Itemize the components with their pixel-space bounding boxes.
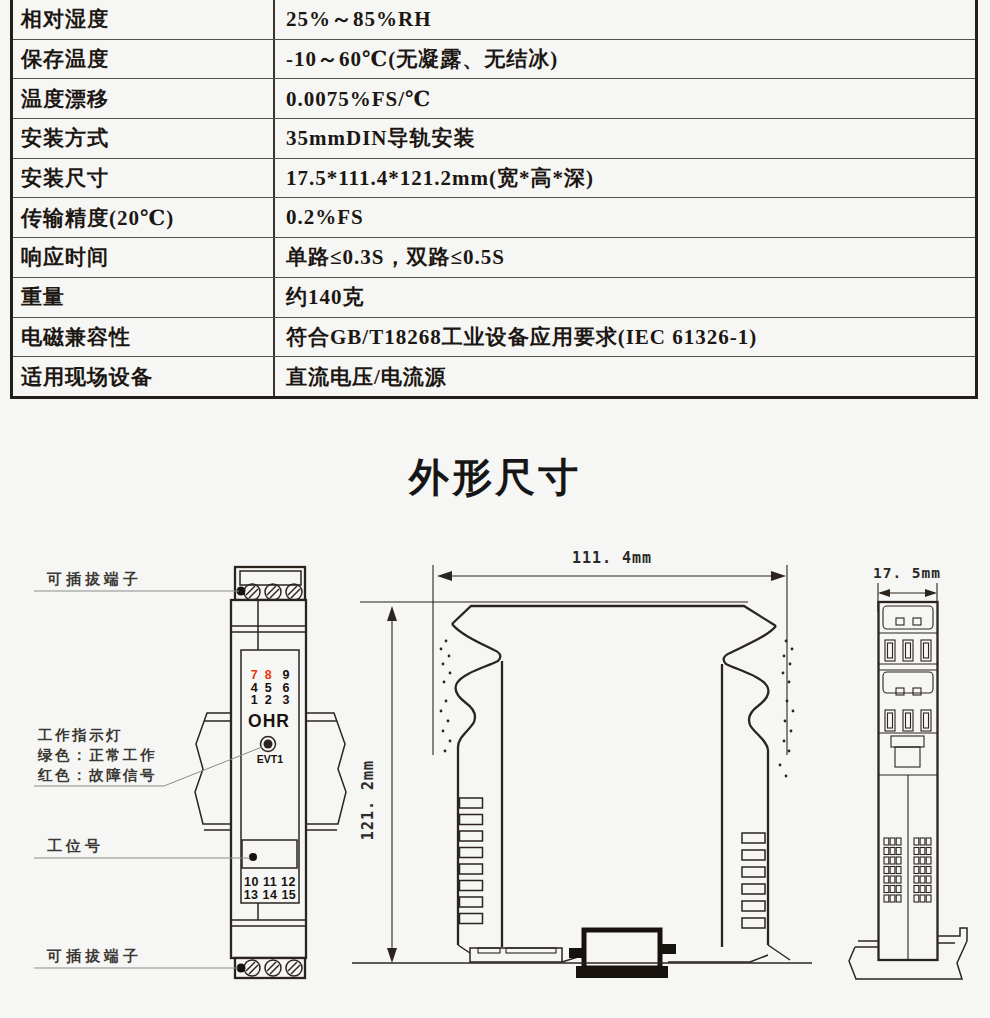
din-rail-right [306, 713, 346, 830]
row-value: 17.5*111.4*121.2mm(宽*高*深) [275, 164, 975, 192]
row-value: 0.0075%FS/℃ [275, 86, 975, 112]
label-work-indicator: 工作指示灯 [37, 727, 123, 743]
svg-text:13 14 15: 13 14 15 [244, 888, 297, 902]
row-label: 适用现场设备 [13, 357, 275, 396]
vent-slots-right [742, 833, 765, 928]
station-number-box [242, 840, 297, 868]
row-label: 电磁兼容性 [13, 318, 275, 357]
texture-dots-left [440, 640, 452, 753]
svg-text:1 2 3: 1 2 3 [251, 693, 290, 707]
side-view: 111. 4mm 121. 2mm [352, 549, 812, 978]
row-label: 安装方式 [13, 119, 275, 158]
terminal-numbers-bottom: 10 11 12 13 14 15 [244, 875, 297, 902]
svg-text:121. 2mm: 121. 2mm [359, 760, 377, 840]
row-label: 相对湿度 [13, 0, 275, 39]
row-value: 符合GB/T18268工业设备应用要求(IEC 61326-1) [275, 323, 975, 351]
svg-text:17. 5mm: 17. 5mm [873, 565, 941, 581]
svg-text:111. 4mm: 111. 4mm [572, 549, 652, 567]
table-row: 安装方式 35mmDIN导轨安装 [13, 118, 975, 158]
row-label: 安装尺寸 [13, 159, 275, 198]
module-profile [352, 606, 812, 978]
svg-text:10 11 12: 10 11 12 [244, 875, 296, 889]
brand-logo: OHR [248, 711, 290, 731]
front-view: 7 8 9 4 5 6 1 2 3 OHR [195, 567, 346, 978]
row-value: 单路≤0.3S，双路≤0.5S [275, 243, 975, 271]
table-row: 相对湿度 25%～85%RH [13, 0, 975, 39]
label-station-number: 工位号 [47, 837, 104, 854]
row-label: 传输精度(20℃) [13, 198, 275, 237]
table-row: 保存温度 -10～60℃(无凝露、无结冰) [13, 39, 975, 79]
dim-height: 121. 2mm [359, 602, 748, 963]
row-label: 温度漂移 [13, 79, 275, 118]
label-pluggable-terminal-top: 可插拔端子 [46, 570, 142, 587]
table-row: 电磁兼容性 符合GB/T18268工业设备应用要求(IEC 61326-1) [13, 317, 975, 357]
label-red-fault: 红色：故障信号 [37, 767, 157, 783]
row-label: 重量 [13, 278, 275, 317]
page: 相对湿度 25%～85%RH 保存温度 -10～60℃(无凝露、无结冰) 温度漂… [0, 0, 990, 1018]
led-label: EVT1 [257, 753, 283, 765]
row-value: -10～60℃(无凝露、无结冰) [275, 45, 975, 73]
label-pluggable-terminal-bottom: 可插拔端子 [46, 947, 142, 964]
table-row: 安装尺寸 17.5*111.4*121.2mm(宽*高*深) [13, 158, 975, 198]
table-row: 适用现场设备 直流电压/电流源 [13, 356, 975, 396]
row-value: 约140克 [275, 283, 975, 311]
vent-slots-left [460, 798, 483, 924]
spec-table: 相对湿度 25%～85%RH 保存温度 -10～60℃(无凝露、无结冰) 温度漂… [10, 0, 978, 399]
table-row: 传输精度(20℃) 0.2%FS [13, 197, 975, 237]
section-title: 外形尺寸 [0, 450, 990, 505]
table-row: 温度漂移 0.0075%FS/℃ [13, 78, 975, 118]
callouts: 可插拔端子 工作指示灯 绿色：正常工作 红色：故障信号 工位号 可插拔端子 [34, 570, 262, 968]
table-row: 响应时间 单路≤0.3S，双路≤0.5S [13, 237, 975, 277]
row-value: 直流电压/电流源 [275, 363, 975, 391]
label-green-normal: 绿色：正常工作 [37, 747, 157, 763]
row-value: 25%～85%RH [275, 5, 975, 33]
row-value: 0.2%FS [275, 205, 975, 230]
row-value: 35mmDIN导轨安装 [275, 124, 975, 152]
row-label: 保存温度 [13, 40, 275, 79]
table-row: 重量 约140克 [13, 277, 975, 317]
terminal-numbers-top: 7 8 9 4 5 6 1 2 3 [251, 668, 290, 707]
leader-dot [249, 853, 257, 861]
top-view: 17. 5mm [849, 565, 967, 979]
row-label: 响应时间 [13, 238, 275, 277]
dimension-drawing: 7 8 9 4 5 6 1 2 3 OHR [0, 528, 990, 1018]
bottom-details [458, 930, 790, 978]
